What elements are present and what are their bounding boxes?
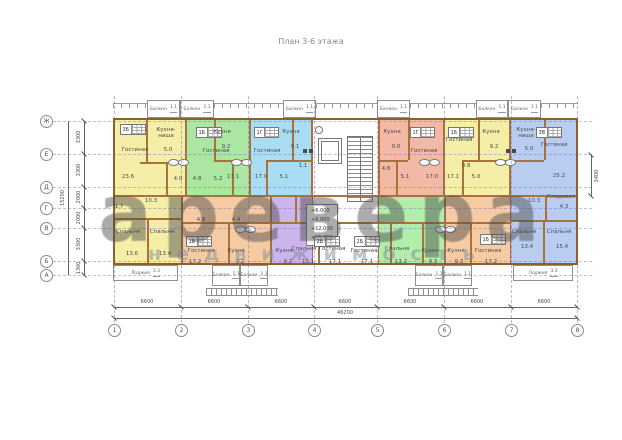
room-label: Гостиная	[446, 138, 473, 144]
unit-stamp: 3В	[536, 127, 562, 138]
axis-line-6	[444, 96, 445, 323]
stamp-grid-icon	[131, 125, 145, 134]
area-label: 9.2	[490, 144, 499, 150]
dim-value: 6600	[339, 299, 352, 305]
stamp-grid-icon	[365, 237, 379, 246]
shaft-icon	[309, 149, 313, 153]
area-label: 13.4	[521, 244, 533, 250]
unit-id: 1Б	[197, 128, 207, 137]
wall	[113, 195, 578, 197]
area-label: 10.3	[528, 198, 540, 204]
dim-chain	[541, 103, 578, 108]
stamp-grid-icon	[420, 128, 434, 137]
area-label: 4.8	[197, 217, 206, 223]
unit-stamp: 1В	[186, 236, 212, 247]
area-label: 0.8	[462, 163, 471, 169]
area-label: 5.1	[280, 174, 289, 180]
stamp-grid-icon	[325, 237, 339, 246]
page-title: План 3-6 этажа	[278, 37, 343, 46]
wall	[147, 218, 149, 265]
balcony-label: Балкон	[380, 107, 397, 112]
area-label: 13.1	[302, 259, 314, 265]
plumbing-icon	[429, 159, 440, 166]
dim-value: 6600	[208, 299, 221, 305]
dim-chain	[410, 103, 476, 108]
unit-id: 1Б	[481, 235, 491, 244]
axis-circle: 4	[308, 324, 321, 337]
area-label: 17.1	[329, 259, 341, 265]
room-label: Гостиная	[122, 148, 149, 154]
balcony-area: 1.1	[498, 105, 505, 112]
axis-circle: 3	[242, 324, 255, 337]
unit-stamp: 3Б	[120, 124, 146, 135]
area-label: 15.4	[556, 244, 568, 250]
unit-stamp: 1Б	[480, 234, 506, 245]
room-label: Спальня	[150, 230, 174, 236]
loggia: Лоджия3.3	[113, 265, 178, 281]
dim-value: 6600	[538, 299, 551, 305]
dim-value: 6600	[471, 299, 484, 305]
wall	[146, 118, 148, 162]
axis-line-d	[53, 187, 592, 188]
room-label: Гостиная	[319, 247, 346, 253]
stamp-grid-icon	[491, 235, 505, 244]
axis-line-zh	[53, 121, 592, 122]
axis-line-3	[248, 96, 249, 323]
area-label: 13.4	[159, 251, 171, 257]
wall	[295, 196, 297, 222]
axis-circle: Д	[40, 181, 53, 194]
axis-circle: Е	[40, 148, 53, 161]
area-label: 17.0	[255, 174, 267, 180]
axis-circle: 7	[505, 324, 518, 337]
axis-line-5	[377, 96, 378, 323]
elevation-mark: +6.000	[311, 207, 333, 216]
area-label: 9.3	[455, 259, 464, 265]
dim-value: 2000	[76, 191, 82, 204]
axis-circle: 6	[438, 324, 451, 337]
area-label: 17.1	[447, 174, 459, 180]
wall	[543, 220, 545, 265]
area-label: 9.1	[291, 144, 300, 150]
room-label: Кухня	[275, 249, 292, 255]
room-label: Кухня	[282, 130, 299, 136]
balcony: Балкон1.1	[147, 100, 180, 118]
wall	[396, 160, 398, 196]
balcony-area: 1.1	[531, 105, 538, 112]
area-label: 4.8	[382, 166, 391, 172]
area-label: 4.0	[174, 176, 183, 182]
room-label: Спальня	[292, 247, 316, 253]
unit-stamp: 2Б	[354, 236, 380, 247]
plumbing-icon	[241, 159, 252, 166]
balcony-area: 1.1	[400, 105, 407, 112]
area-label: 5.1	[401, 174, 410, 180]
axis-line-7	[511, 96, 512, 323]
unit-id: 1Г	[255, 128, 264, 137]
stamp-grid-icon	[197, 237, 211, 246]
dim-value: 3300	[76, 238, 82, 251]
unit-stamp: 1Г	[254, 127, 279, 138]
room-label: Кухня	[383, 130, 400, 136]
area-label: 4.4	[232, 217, 241, 223]
axis-circle: 1	[108, 324, 121, 337]
loggia: Лоджия3.3	[513, 265, 573, 281]
dim-line	[591, 155, 592, 196]
balcony: Балкон1.1	[283, 100, 316, 118]
room-label: Гостиная	[475, 249, 502, 255]
unit-id: 2Б	[315, 237, 325, 246]
area-label: 1.1	[299, 163, 308, 169]
unit-stamp: 1Г	[410, 127, 435, 138]
unit-id: 3Б	[121, 125, 131, 134]
room-label: Кухня-ниша	[153, 128, 179, 140]
axis-circle: А	[40, 269, 53, 282]
area-label: 9.3	[429, 259, 438, 265]
unit-id: 2Б	[355, 237, 365, 246]
dim-value: 3400	[594, 170, 600, 183]
balcony-area: 1.1	[170, 105, 177, 112]
area-label: 5.0	[525, 146, 534, 152]
room-label: Спальня	[547, 230, 571, 236]
shaft-icon	[506, 149, 510, 153]
dim-value: 3300	[76, 164, 82, 177]
railing-hatch	[206, 288, 278, 296]
dim-line	[68, 121, 69, 275]
floorplan-canvas: План 3-6 этажа	[0, 0, 622, 440]
room-label: Кухня	[227, 249, 244, 255]
room-label: Кухня	[421, 249, 438, 255]
room-label: Кладовая	[547, 195, 575, 201]
area-label: 5.2	[214, 176, 223, 182]
unit-id: 1В	[187, 237, 197, 246]
balcony: Балкон1.1	[508, 100, 541, 118]
room-label: Спальня	[116, 230, 140, 236]
area-label: 9.2	[284, 259, 293, 265]
balcony-label: Балкон	[150, 107, 167, 112]
dim-line	[84, 121, 85, 275]
room-label: Гостиная	[411, 149, 438, 155]
dim-value: 6600	[141, 299, 154, 305]
wall	[182, 222, 271, 224]
room-label: Кухня	[482, 130, 499, 136]
axis-circle: В	[40, 222, 53, 235]
unit-id: 1Б	[449, 128, 459, 137]
axis-line-2	[181, 96, 182, 323]
dim-line	[114, 318, 577, 319]
balcony-label: Балкон	[478, 107, 495, 112]
room-label: Спальня	[512, 230, 536, 236]
balcony: Балкон1.1	[180, 100, 214, 118]
room-label: Гостиная	[188, 249, 215, 255]
axis-circle: Ж	[40, 115, 53, 128]
axis-circle: 5	[371, 324, 384, 337]
area-label: 17.1	[361, 259, 373, 265]
area-label: 13.2	[395, 259, 407, 265]
area-label: 13.6	[126, 251, 138, 257]
room-label: Кухня	[447, 249, 464, 255]
dim-total: 46200	[337, 310, 353, 316]
balcony-area: 1.1	[306, 105, 313, 112]
dim-total: 15200	[60, 190, 66, 206]
area-label: 17.1	[227, 174, 239, 180]
balcony-area: 1.1	[203, 105, 210, 112]
staircase	[347, 136, 373, 202]
stamp-grid-icon	[264, 128, 278, 137]
room-label: Гостиная	[541, 143, 568, 149]
area-label: 9.2	[236, 259, 245, 265]
area-label: 1.7	[115, 204, 124, 210]
stamp-grid-icon	[459, 128, 473, 137]
axis-line-e	[53, 154, 592, 155]
axis-circle: 8	[571, 324, 584, 337]
wall	[445, 222, 511, 224]
axis-line-8	[577, 96, 578, 323]
area-label: 17.2	[485, 259, 497, 265]
axis-circle: Г	[40, 202, 53, 215]
shaft-icon	[303, 149, 307, 153]
axis-line-b	[53, 261, 592, 262]
dim-chain	[316, 103, 377, 108]
balcony-label: Балкон	[183, 107, 200, 112]
axis-circle: 2	[175, 324, 188, 337]
dim-value: 1300	[76, 262, 82, 275]
elevation-mark: +9.000	[311, 216, 333, 225]
dim-value: 3300	[76, 131, 82, 144]
balcony: Балкон1.1	[476, 100, 508, 118]
room-label: Кухня-ниша	[513, 128, 539, 140]
vent-shaft-icon	[315, 126, 323, 134]
area-label: 5.0	[472, 174, 481, 180]
elevation-mark: +12.000	[311, 225, 333, 234]
area-label: 4.8	[193, 176, 202, 182]
area-label: 4.3	[560, 204, 569, 210]
axis-line-a	[53, 275, 592, 276]
railing-hatch	[408, 288, 478, 296]
area-label: 17.2	[189, 259, 201, 265]
unit-id: 1Г	[411, 128, 420, 137]
balcony: Балкон1.1	[377, 100, 410, 118]
plumbing-icon	[178, 159, 189, 166]
shaft-icon	[512, 149, 516, 153]
wall	[379, 160, 408, 162]
room-label: Гостиная	[254, 149, 281, 155]
balcony-label: Балкон	[286, 107, 303, 112]
area-label: 17.0	[426, 174, 438, 180]
room-label: Гостиная	[203, 149, 230, 155]
area-label: 5.0	[164, 147, 173, 153]
balcony-label: Балкон	[511, 107, 528, 112]
area-label: 9.0	[392, 144, 401, 150]
elevator-shaft	[318, 138, 342, 164]
room-label: Гостиная	[351, 249, 378, 255]
dim-value: 2000	[76, 212, 82, 225]
area-label: 23.6	[122, 174, 134, 180]
dim-value: 6600	[275, 299, 288, 305]
wall	[266, 160, 312, 162]
dim-chain	[113, 103, 147, 108]
stamp-grid-icon	[547, 128, 561, 137]
area-label: 25.2	[553, 173, 565, 179]
dim-value: 6600	[404, 299, 417, 305]
axis-circle: Б	[40, 255, 53, 268]
wall	[352, 222, 445, 224]
room-label: Спальня	[385, 247, 409, 253]
wall	[166, 162, 168, 196]
room-label: Кухня	[213, 130, 230, 136]
area-label: 10.3	[145, 198, 157, 204]
